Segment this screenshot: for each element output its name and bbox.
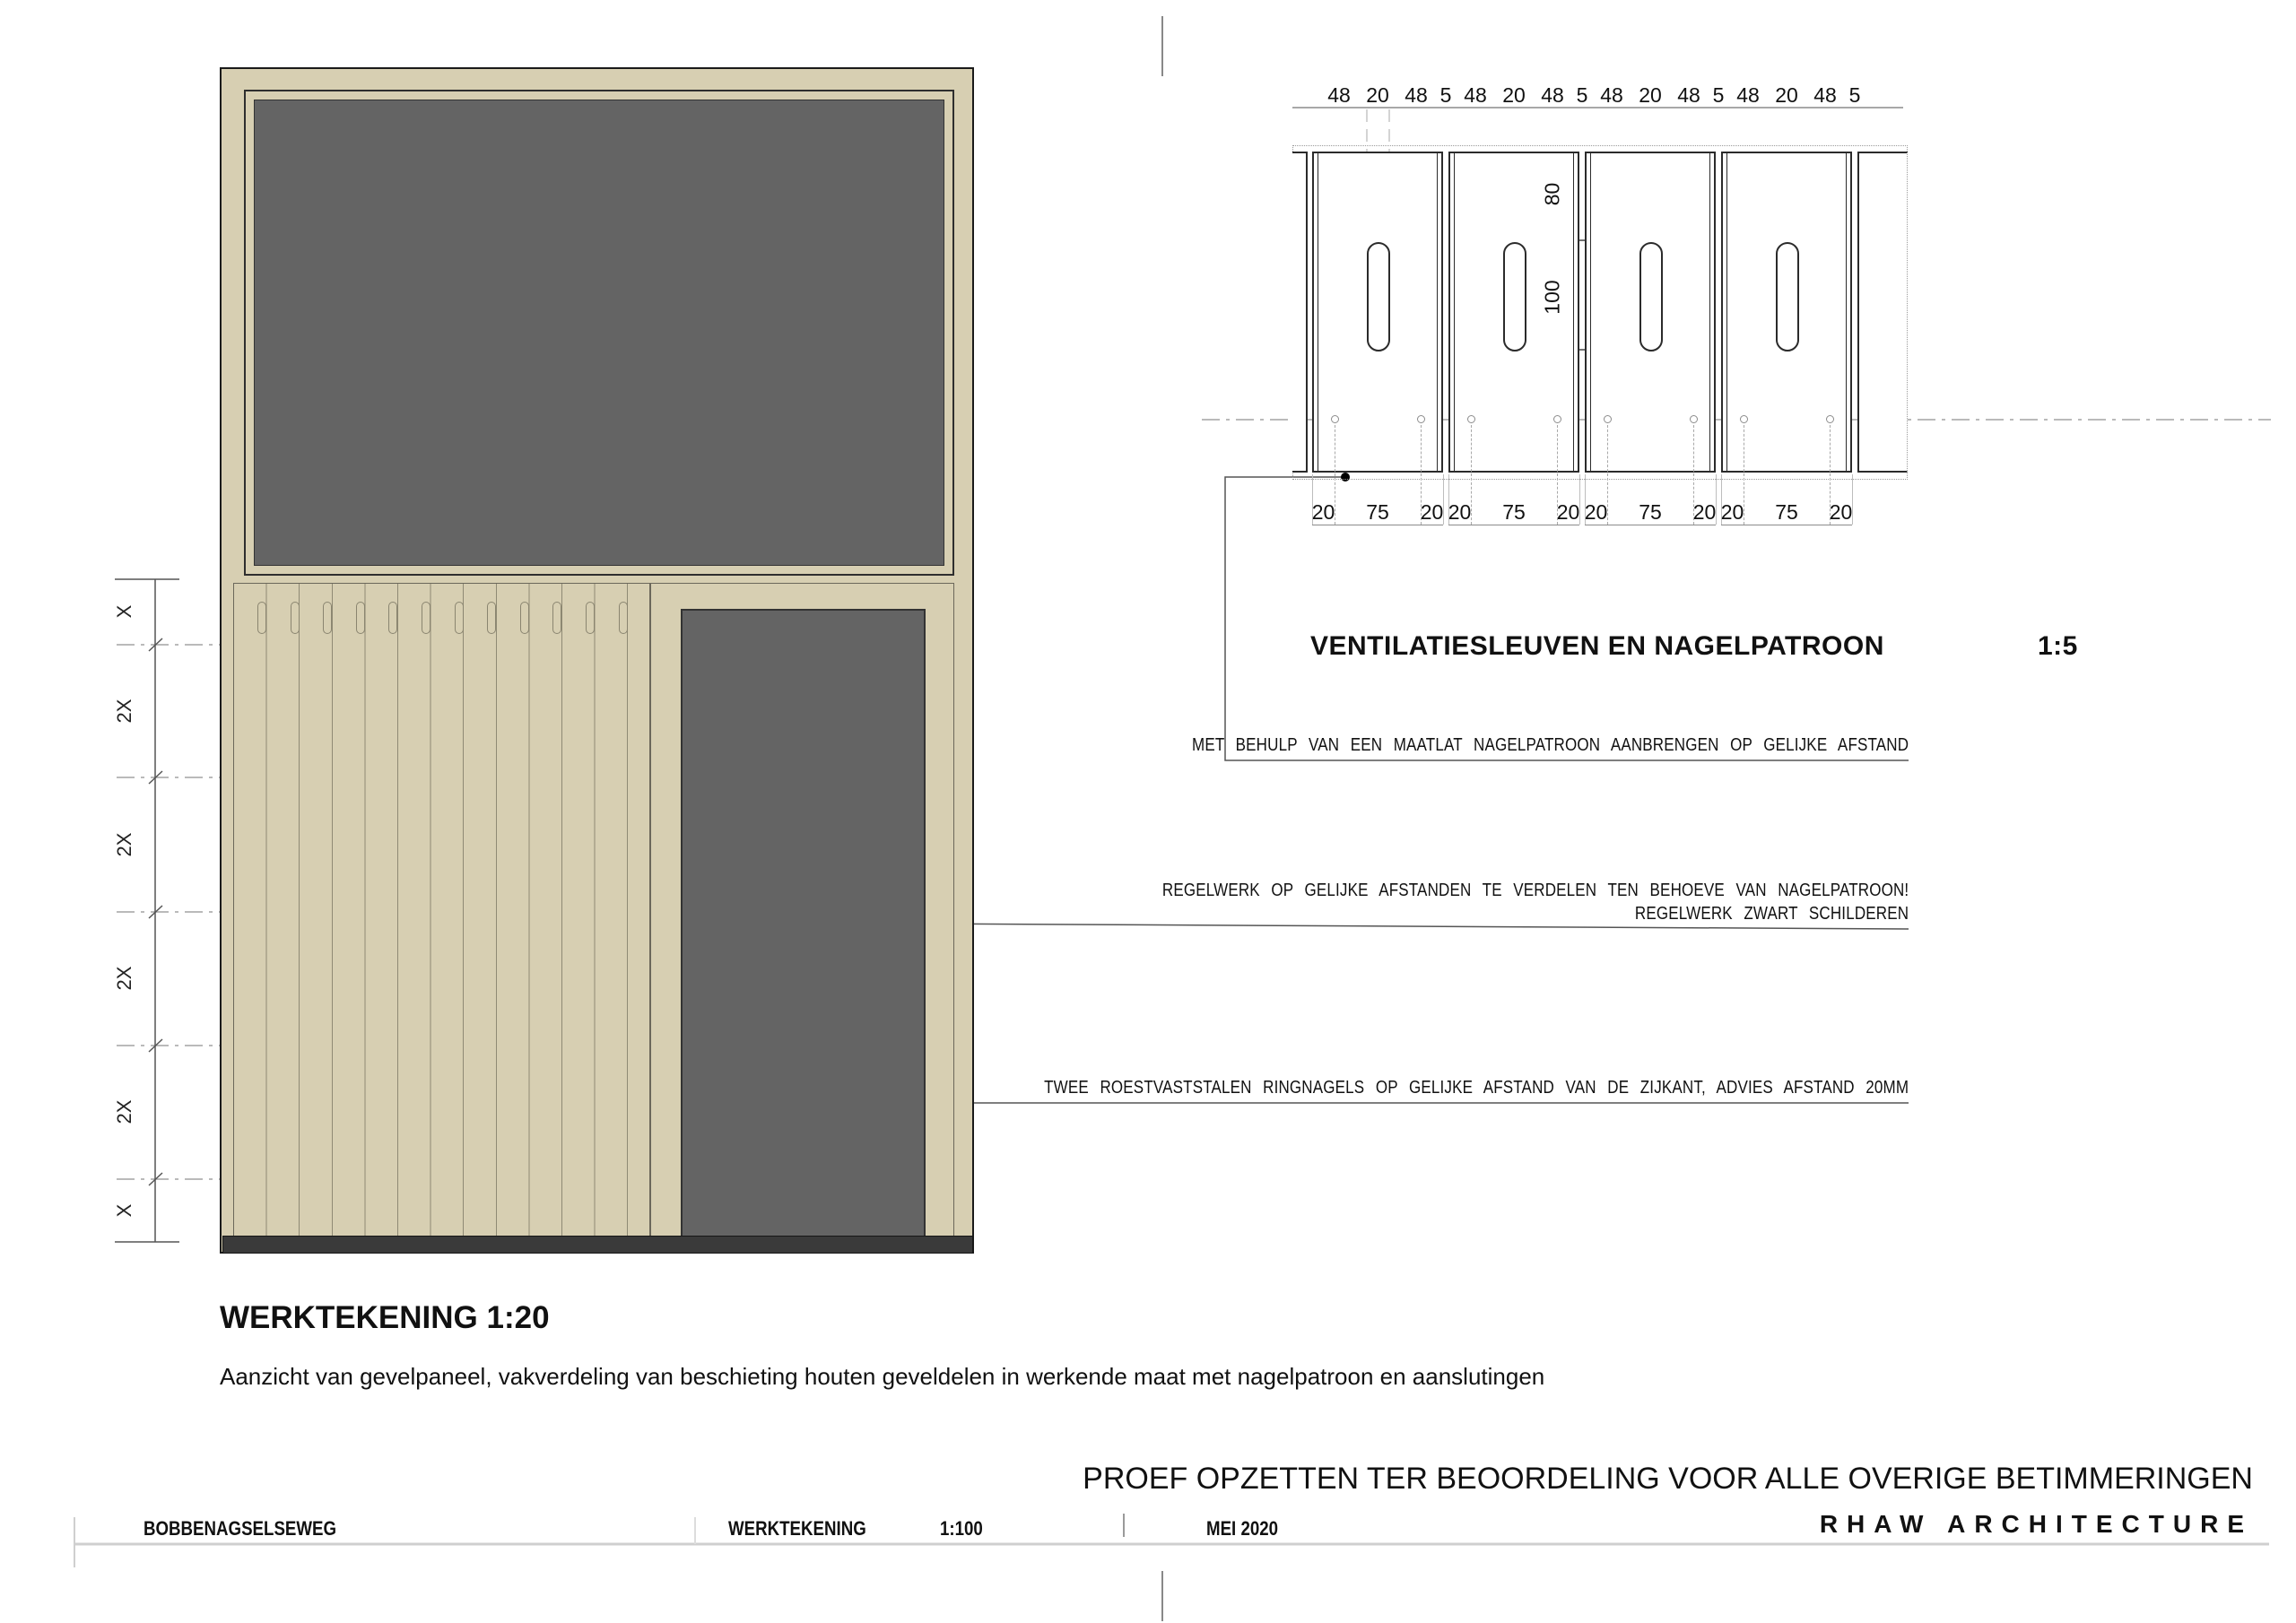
detail-bottom-dim-line	[1585, 525, 1716, 525]
top-dim-number: 48	[1464, 83, 1487, 108]
detail-title: VENTILATIESLEUVEN EN NAGELPATROON	[1310, 631, 1884, 662]
note-banner: PROEF OPZETTEN TER BEOORDELING VOOR ALLE…	[1083, 1462, 2253, 1497]
top-dim-number: 48	[1327, 83, 1351, 108]
bottom-dim-number: 20	[1448, 500, 1472, 525]
bottom-dim-number: 75	[1639, 500, 1662, 525]
detail-board	[1312, 152, 1443, 473]
facade-vent-slot	[552, 602, 561, 634]
facade-vent-slot	[520, 602, 529, 634]
detail-board	[1585, 152, 1716, 473]
top-dim-number: 20	[1639, 83, 1662, 108]
detail-bottom-dim-line	[1312, 525, 1443, 525]
vent-slot	[1776, 242, 1799, 352]
facade-vent-slot	[586, 602, 595, 634]
facade-vent-slot	[455, 602, 464, 634]
facade-vent-slot	[291, 602, 300, 634]
nail-drop-line	[1335, 425, 1335, 525]
top-dim-number: 48	[1405, 83, 1428, 108]
facade-board-cladding	[233, 583, 650, 1237]
top-dim-number: 5	[1440, 83, 1452, 108]
annotation-ringnagels: TWEE ROESTVASTSTALEN RINGNAGELS OP GELIJ…	[1044, 1078, 1909, 1098]
left-dim-label: 2X	[113, 825, 138, 864]
board-edge-line	[1437, 153, 1438, 471]
drawing-title: WERKTEKENING 1:20	[220, 1300, 550, 1336]
board-edge-line	[1709, 153, 1710, 471]
facade-vent-slot	[257, 602, 266, 634]
bottom-dim-number: 20	[1721, 500, 1744, 525]
board-edge-line	[1454, 153, 1455, 471]
board-edge-line	[1318, 153, 1318, 471]
nail-drop-line	[1471, 425, 1472, 525]
nail-position	[1690, 415, 1698, 423]
detail-board-partial	[1857, 152, 1908, 473]
bottom-dim-number: 75	[1502, 500, 1526, 525]
left-dimension-line	[115, 579, 179, 1242]
annotation-regelwerk-verdelen: REGELWERK OP GELIJKE AFSTANDEN TE VERDEL…	[1162, 881, 1909, 901]
annotation-maatlat: MET BEHULP VAN EEN MAATLAT NAGELPATROON …	[1192, 735, 1909, 756]
nail-position	[1826, 415, 1834, 423]
top-dim-number: 20	[1502, 83, 1526, 108]
left-dim-label: X	[113, 592, 138, 631]
top-dim-number: 48	[1736, 83, 1760, 108]
titlebar-project: BOBBENAGSELSEWEG	[143, 1517, 336, 1541]
top-dim-number: 5	[1849, 83, 1861, 108]
bottom-dim-number: 20	[1421, 500, 1444, 525]
facade-vent-slot	[356, 602, 365, 634]
nail-drop-line	[1607, 425, 1608, 525]
facade-vent-slot	[487, 602, 496, 634]
facade-door-dark-panel	[681, 609, 926, 1237]
detail-board	[1721, 152, 1852, 473]
bottom-dim-number: 20	[1830, 500, 1853, 525]
top-dim-number: 48	[1813, 83, 1837, 108]
facade-window-dark-panel	[254, 100, 944, 566]
top-dim-number: 48	[1677, 83, 1700, 108]
titlebar-scale: 1:100	[940, 1517, 983, 1541]
left-dim-label: X	[113, 1191, 138, 1230]
nail-position	[1417, 415, 1425, 423]
facade-window-frame	[244, 90, 954, 576]
bottom-dim-number: 20	[1557, 500, 1580, 525]
board-edge-line	[1726, 153, 1727, 471]
vent-slot	[1503, 242, 1526, 352]
board-edge-line	[1846, 153, 1847, 471]
left-dim-label: 2X	[113, 959, 138, 998]
facade-vent-slot	[619, 602, 628, 634]
titlebar-firm: RHAW ARCHITECTURE	[1820, 1510, 2253, 1539]
board-edge-line	[1573, 153, 1574, 471]
bottom-dim-number: 75	[1366, 500, 1389, 525]
top-dim-number: 20	[1366, 83, 1389, 108]
titlebar-doc-type: WERKTEKENING	[728, 1517, 866, 1541]
facade-base-strip	[222, 1236, 973, 1254]
detail-scale: 1:5	[2038, 631, 2078, 662]
bottom-dim-number: 20	[1585, 500, 1608, 525]
left-dim-label: 2X	[113, 691, 138, 731]
titlebar-date: MEI 2020	[1206, 1517, 1278, 1541]
detail-dim-80: 80	[1540, 183, 1564, 206]
bottom-dim-number: 75	[1775, 500, 1798, 525]
top-dim-number: 48	[1600, 83, 1623, 108]
vent-slot	[1639, 242, 1663, 352]
drawing-subtitle: Aanzicht van gevelpaneel, vakverdeling v…	[220, 1363, 1544, 1391]
detail-dim-100: 100	[1541, 280, 1565, 314]
top-dim-number: 48	[1541, 83, 1564, 108]
detail-bottom-dim-line	[1721, 525, 1852, 525]
bottom-dim-number: 20	[1693, 500, 1717, 525]
facade-panel-drawing	[220, 67, 974, 1254]
annotation-regelwerk-zwart: REGELWERK ZWART SCHILDEREN	[1635, 904, 1909, 924]
drawing-sheet: X2X2X2X2XX 48204852075204820485207520482…	[0, 0, 2296, 1623]
detail-board-partial	[1292, 152, 1308, 473]
nail-drop-line	[1744, 425, 1744, 525]
bottom-dim-number: 20	[1312, 500, 1335, 525]
nail-position	[1553, 415, 1561, 423]
facade-vent-slot	[323, 602, 332, 634]
facade-vent-slot	[388, 602, 397, 634]
vent-slot	[1367, 242, 1390, 352]
top-dim-number: 20	[1775, 83, 1798, 108]
left-dim-label: 2X	[113, 1092, 138, 1132]
board-edge-line	[1590, 153, 1591, 471]
top-dim-number: 5	[1713, 83, 1725, 108]
facade-vent-slot	[422, 602, 430, 634]
detail-bottom-dim-line	[1448, 525, 1579, 525]
top-dim-number: 5	[1577, 83, 1588, 108]
